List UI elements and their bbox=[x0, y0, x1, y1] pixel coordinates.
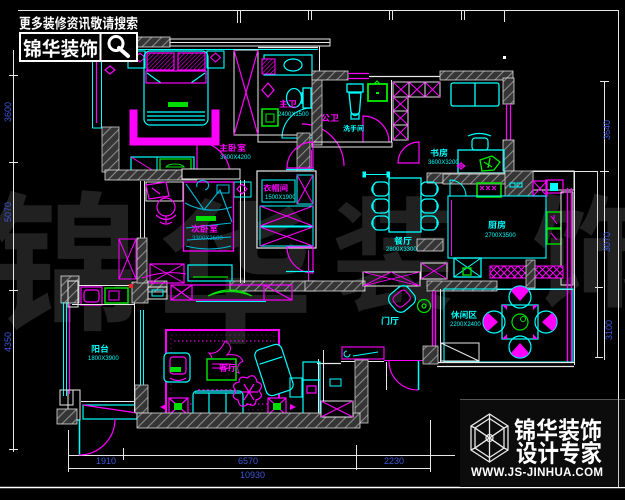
svg-text:6570: 6570 bbox=[238, 456, 258, 466]
svg-text:5070: 5070 bbox=[3, 202, 13, 222]
svg-text:WWW.JS-JINHUA.COM: WWW.JS-JINHUA.COM bbox=[471, 467, 603, 479]
svg-text:3600X3200: 3600X3200 bbox=[428, 160, 459, 166]
svg-text:10930: 10930 bbox=[240, 470, 265, 480]
svg-text:2230: 2230 bbox=[384, 456, 404, 466]
svg-text:4350: 4350 bbox=[3, 332, 13, 352]
svg-text:2200X2400: 2200X2400 bbox=[450, 322, 481, 328]
svg-text:1500X1900: 1500X1900 bbox=[265, 195, 296, 201]
svg-text:3070: 3070 bbox=[602, 232, 612, 252]
svg-text:2400X1500: 2400X1500 bbox=[278, 112, 309, 118]
svg-text:3640: 3640 bbox=[602, 120, 612, 140]
svg-text:1910: 1910 bbox=[96, 456, 116, 466]
svg-text:3600: 3600 bbox=[3, 102, 13, 122]
svg-text:2800X3300: 2800X3300 bbox=[386, 247, 417, 253]
svg-text:3300X3600: 3300X3600 bbox=[192, 236, 223, 242]
svg-text:3100: 3100 bbox=[604, 320, 614, 340]
svg-text:1800X3900: 1800X3900 bbox=[88, 356, 119, 362]
svg-text:2700X3500: 2700X3500 bbox=[485, 233, 516, 239]
